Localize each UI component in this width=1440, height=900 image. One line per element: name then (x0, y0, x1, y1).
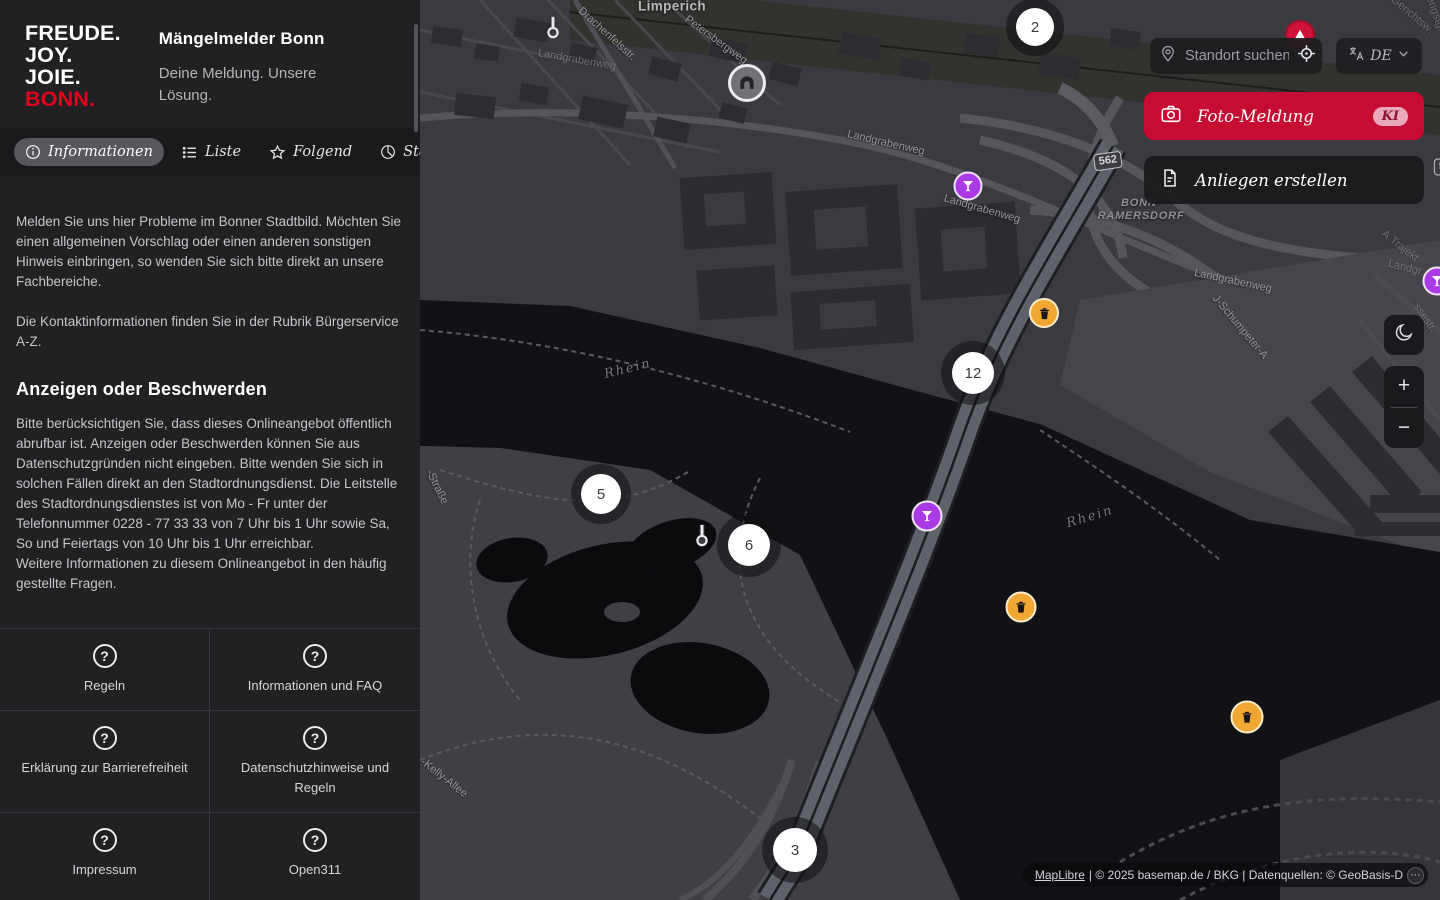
translate-icon (1348, 45, 1365, 67)
scrollbar-thumb[interactable] (414, 24, 418, 132)
zoom-in-button[interactable]: + (1384, 366, 1424, 407)
map-viewport[interactable]: LimperichDrachenfelsstr.LandgrabenwegPet… (420, 0, 1440, 900)
cocktail-icon (1430, 274, 1440, 289)
sidebar-header: FREUDE.JOY.JOIE.BONN. Mängelmelder Bonn … (0, 0, 420, 128)
page-subtitle: Deine Meldung. Unsere Lösung. (159, 63, 334, 107)
road-shield: 562 (1434, 159, 1440, 176)
tunnel-icon (737, 73, 757, 93)
help-icon: ? (303, 726, 327, 750)
camera-icon (1160, 103, 1182, 129)
cluster-marker-2[interactable]: 2 (1016, 8, 1054, 46)
footer-link-label: Regeln (84, 676, 125, 696)
cocktail-icon (920, 509, 935, 524)
foto-meldung-label: Foto-Meldung (1197, 107, 1314, 126)
footer-link-label: Informationen und FAQ (248, 676, 382, 696)
cocktail-icon (961, 179, 976, 194)
cluster-count: 12 (952, 352, 994, 394)
help-icon: ? (303, 644, 327, 668)
page-title: Mängelmelder Bonn (159, 29, 334, 49)
foto-meldung-button[interactable]: Foto-Meldung KI (1144, 92, 1424, 140)
thermometer-poi[interactable] (546, 15, 561, 39)
anliegen-erstellen-label: Anliegen erstellen (1195, 171, 1348, 190)
cluster-count: 5 (581, 474, 621, 514)
cluster-marker-3[interactable]: 3 (773, 828, 817, 872)
tunnel-poi[interactable] (728, 64, 766, 102)
cluster-count: 2 (1016, 8, 1054, 46)
sidebar-content: Melden Sie uns hier Probleme im Bonner S… (0, 176, 420, 628)
tab-bar: InformationenListeFolgendStatistik (0, 128, 420, 176)
footer-link-label: Datenschutzhinweise und Regeln (223, 758, 408, 798)
sidebar-footer: ?Regeln?Informationen und FAQ?Erklärung … (0, 628, 420, 900)
sidebar: FREUDE.JOY.JOIE.BONN. Mängelmelder Bonn … (0, 0, 420, 900)
pin-trash-marker[interactable] (1006, 592, 1037, 623)
attribution-toggle-icon[interactable]: ⋯ (1407, 867, 1424, 884)
logo-line: JOIE. (25, 66, 121, 88)
info-paragraph: Melden Sie uns hier Probleme im Bonner S… (16, 212, 404, 292)
zoom-control: + − (1384, 366, 1424, 448)
info-icon (25, 144, 41, 160)
list-icon (181, 144, 198, 161)
section-heading: Anzeigen oder Beschwerden (16, 379, 404, 399)
thermometer-icon (695, 523, 710, 547)
zoom-out-button[interactable]: − (1384, 407, 1424, 448)
help-icon: ? (93, 828, 117, 852)
logo-line: FREUDE. (25, 22, 121, 44)
cluster-marker-6[interactable]: 6 (728, 524, 770, 566)
mangelmelder-app: FREUDE.JOY.JOIE.BONN. Mängelmelder Bonn … (0, 0, 1440, 900)
info-paragraph: Bitte berücksichtigen Sie, dass dieses O… (16, 414, 404, 594)
bonn-logo: FREUDE.JOY.JOIE.BONN. (25, 22, 121, 110)
crosshair-icon[interactable] (1297, 44, 1316, 68)
chevron-down-icon (1397, 47, 1410, 65)
pin-trash-marker[interactable] (1029, 298, 1059, 328)
footer-link-open311[interactable]: ?Open311 (210, 813, 420, 900)
tab-label: Liste (205, 144, 241, 160)
footer-link-datenschutzhinweise-und-regeln[interactable]: ?Datenschutzhinweise und Regeln (210, 711, 420, 813)
cluster-marker-5[interactable]: 5 (581, 474, 621, 514)
footer-link-label: Impressum (72, 860, 136, 880)
star-icon (269, 144, 286, 161)
footer-link-informationen-und-faq[interactable]: ?Informationen und FAQ (210, 629, 420, 711)
help-icon: ? (303, 828, 327, 852)
thermometer-icon (546, 15, 561, 39)
tab-label: Folgend (293, 144, 352, 160)
dark-mode-button[interactable] (1384, 315, 1424, 355)
anliegen-erstellen-button[interactable]: Anliegen erstellen (1144, 156, 1424, 204)
tab-informationen[interactable]: Informationen (14, 138, 164, 166)
location-search[interactable] (1150, 38, 1322, 74)
location-pin-icon (1159, 45, 1177, 68)
search-input[interactable] (1185, 48, 1289, 64)
pin-purple-marker[interactable] (954, 172, 983, 201)
trash-icon (1014, 600, 1029, 615)
map-attribution: MapLibre | © 2025 basemap.de / BKG | Dat… (1023, 863, 1428, 887)
cluster-marker-12[interactable]: 12 (952, 352, 994, 394)
tab-folgend[interactable]: Folgend (258, 138, 363, 167)
tab-liste[interactable]: Liste (170, 138, 252, 167)
pin-trash-marker[interactable] (1231, 701, 1264, 734)
document-icon (1160, 168, 1180, 192)
footer-link-label: Open311 (289, 860, 342, 880)
pin-purple-marker[interactable] (1423, 267, 1440, 296)
help-icon: ? (93, 644, 117, 668)
maplibre-link[interactable]: MapLibre (1035, 868, 1085, 882)
language-code: DE (1370, 48, 1391, 64)
thermometer-poi[interactable] (695, 523, 710, 547)
trash-icon (1240, 710, 1255, 725)
footer-link-label: Erklärung zur Barrierefreiheit (21, 758, 187, 778)
tab-label: Informationen (48, 144, 153, 160)
cluster-count: 3 (773, 828, 817, 872)
footer-link-impressum[interactable]: ?Impressum (0, 813, 210, 900)
trash-icon (1037, 306, 1052, 321)
attribution-text: | © 2025 basemap.de / BKG | Datenquellen… (1089, 868, 1403, 882)
footer-link-erkl-rung-zur-barrierefreiheit[interactable]: ?Erklärung zur Barrierefreiheit (0, 711, 210, 813)
cluster-count: 6 (728, 524, 770, 566)
footer-link-regeln[interactable]: ?Regeln (0, 629, 210, 711)
info-paragraph: Die Kontaktinformationen finden Sie in d… (16, 312, 404, 352)
moon-icon (1394, 322, 1415, 348)
chart-pie-icon (380, 144, 396, 160)
ki-badge: KI (1373, 107, 1408, 126)
logo-line: JOY. (25, 44, 121, 66)
help-icon: ? (93, 726, 117, 750)
logo-line: BONN. (25, 88, 121, 110)
language-selector[interactable]: DE (1336, 38, 1422, 74)
pin-purple-marker[interactable] (912, 501, 943, 532)
